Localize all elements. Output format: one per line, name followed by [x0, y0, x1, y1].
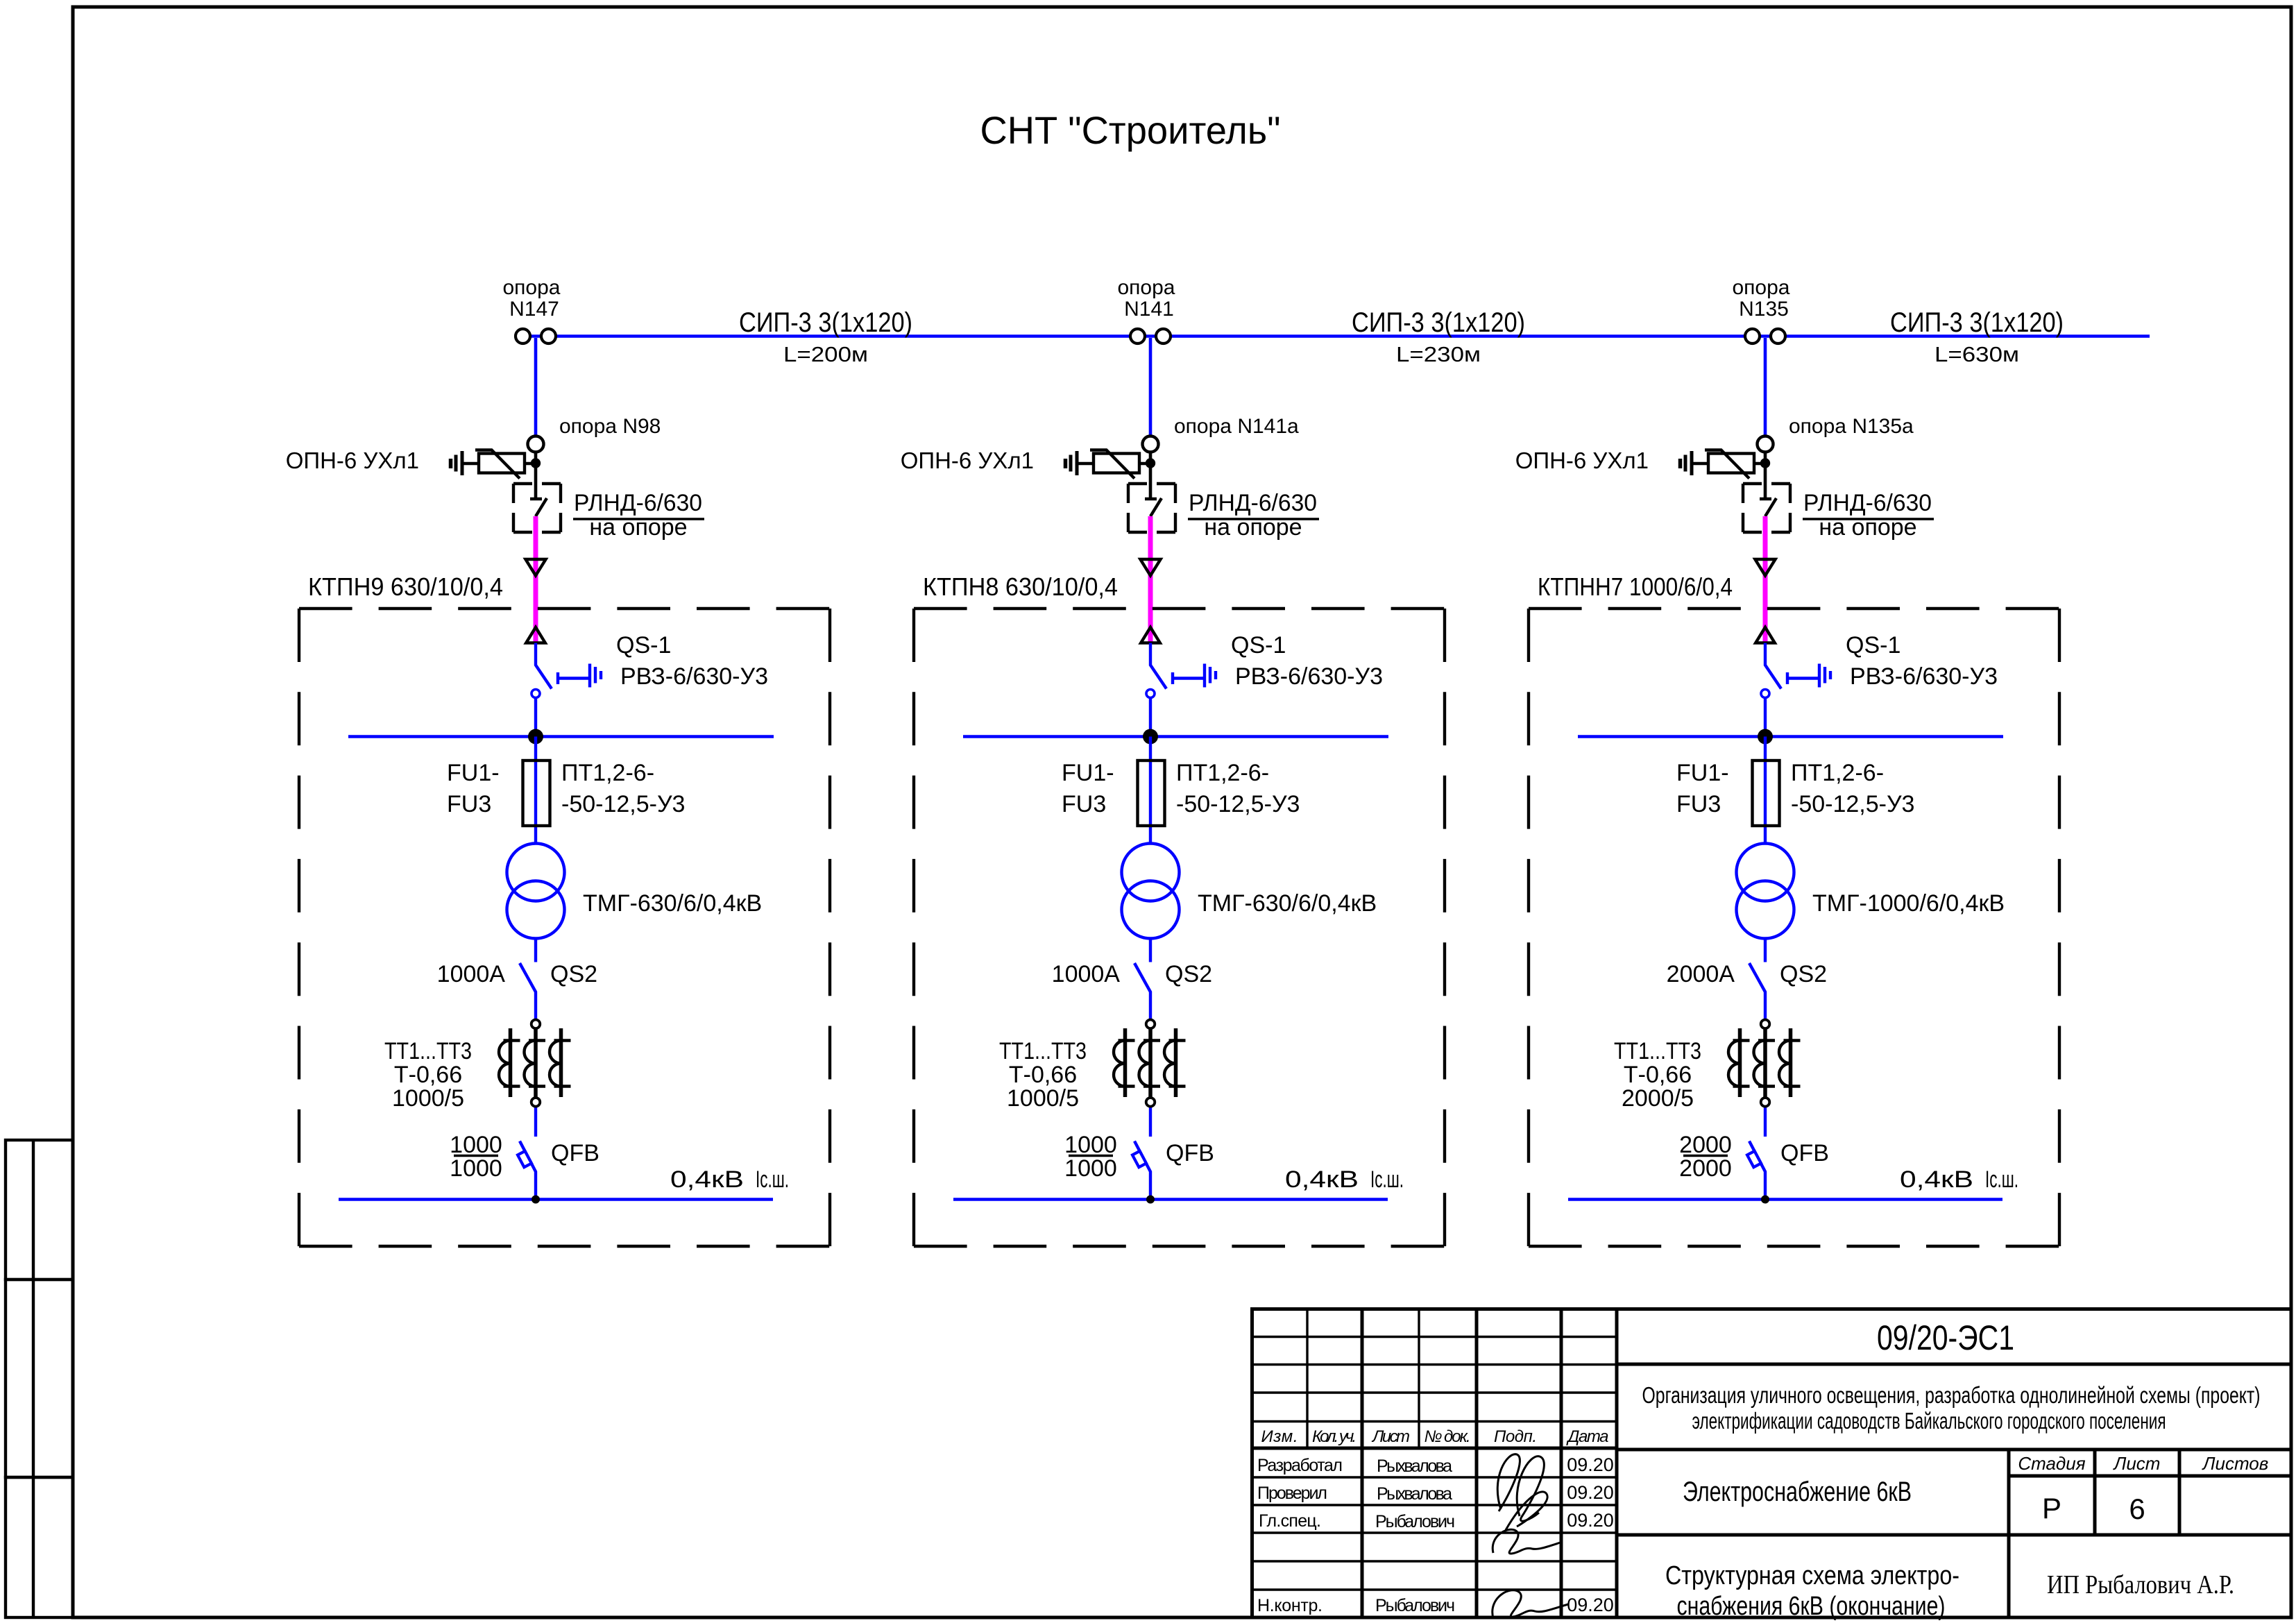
- svg-text:РВЗ-6/630-У3: РВЗ-6/630-У3: [620, 663, 768, 690]
- svg-text:Р: Р: [2042, 1492, 2061, 1524]
- svg-text:Стадия: Стадия: [2018, 1453, 2085, 1474]
- svg-text:Iс.ш.: Iс.ш.: [1985, 1166, 2018, 1193]
- svg-text:1000/5: 1000/5: [1007, 1085, 1079, 1112]
- svg-text:Рыбалович: Рыбалович: [1375, 1512, 1455, 1531]
- svg-text:на опоре: на опоре: [589, 514, 687, 541]
- svg-text:ТТ1...ТТ3: ТТ1...ТТ3: [999, 1038, 1087, 1064]
- svg-text:снабжения 6кВ (окончание): снабжения 6кВ (окончание): [1677, 1592, 1946, 1621]
- svg-text:2000/5: 2000/5: [1622, 1085, 1694, 1112]
- svg-text:на опоре: на опоре: [1819, 514, 1916, 541]
- svg-text:2000: 2000: [1679, 1155, 1732, 1182]
- svg-text:Листов: Листов: [2202, 1453, 2269, 1474]
- svg-text:опора: опора: [503, 276, 561, 299]
- svg-text:РЛНД-6/630: РЛНД-6/630: [1189, 490, 1317, 516]
- svg-text:L=630м: L=630м: [1934, 342, 2019, 366]
- svg-text:Дата: Дата: [1566, 1427, 1609, 1446]
- svg-text:КТПН9 630/10/0,4: КТПН9 630/10/0,4: [308, 572, 503, 601]
- svg-text:ПТ1,2-6-: ПТ1,2-6-: [1176, 760, 1269, 786]
- svg-text:09.20: 09.20: [1567, 1454, 1614, 1475]
- svg-text:QS2: QS2: [1780, 961, 1827, 987]
- svg-text:ТТ1...ТТ3: ТТ1...ТТ3: [384, 1038, 472, 1064]
- svg-text:Лист: Лист: [2113, 1453, 2161, 1474]
- svg-text:Проверил: Проверил: [1257, 1484, 1327, 1503]
- svg-text:Электроснабжение 6кВ: Электроснабжение 6кВ: [1683, 1477, 1912, 1507]
- svg-text:6: 6: [2129, 1493, 2145, 1525]
- svg-text:Т-0,66: Т-0,66: [1009, 1062, 1077, 1088]
- svg-text:0,4кВ: 0,4кВ: [670, 1166, 744, 1193]
- svg-text:Рыбалович: Рыбалович: [1375, 1596, 1455, 1615]
- svg-text:КТПН8 630/10/0,4: КТПН8 630/10/0,4: [923, 572, 1118, 601]
- svg-text:Iс.ш.: Iс.ш.: [1370, 1166, 1404, 1193]
- svg-text:1000: 1000: [1064, 1155, 1117, 1182]
- svg-text:N135: N135: [1739, 298, 1789, 321]
- svg-text:ОПН-6 УХл1: ОПН-6 УХл1: [1515, 448, 1649, 473]
- svg-text:Лист: Лист: [1371, 1427, 1410, 1446]
- svg-text:СИП-3 3(1х120): СИП-3 3(1х120): [1352, 307, 1525, 338]
- svg-text:1000/5: 1000/5: [392, 1085, 464, 1112]
- svg-text:опора: опора: [1118, 276, 1175, 299]
- svg-text:ОПН-6 УХл1: ОПН-6 УХл1: [901, 448, 1034, 473]
- svg-text:QS2: QS2: [1165, 961, 1212, 987]
- svg-text:ИП Рыбалович А.Р.: ИП Рыбалович А.Р.: [2047, 1570, 2234, 1599]
- svg-text:QS-1: QS-1: [1846, 632, 1900, 658]
- svg-text:FU1-: FU1-: [1676, 760, 1729, 786]
- svg-text:Рыхвалова: Рыхвалова: [1377, 1484, 1452, 1504]
- svg-text:-50-12,5-У3: -50-12,5-У3: [561, 791, 685, 817]
- svg-text:ТМГ-630/6/0,4кВ: ТМГ-630/6/0,4кВ: [583, 890, 762, 917]
- svg-text:РВЗ-6/630-У3: РВЗ-6/630-У3: [1850, 663, 1998, 690]
- svg-text:FU1-: FU1-: [447, 760, 500, 786]
- svg-text:Рыхвалова: Рыхвалова: [1377, 1456, 1452, 1476]
- svg-text:№ док.: № док.: [1425, 1427, 1471, 1446]
- svg-text:ТМГ-1000/6/0,4кВ: ТМГ-1000/6/0,4кВ: [1812, 890, 2005, 917]
- svg-text:Т-0,66: Т-0,66: [1624, 1062, 1692, 1088]
- svg-text:СИП-3 3(1х120): СИП-3 3(1х120): [1890, 307, 2064, 338]
- svg-text:электрификации садоводств Байк: электрификации садоводств Байкальского г…: [1692, 1408, 2166, 1434]
- svg-text:РЛНД-6/630: РЛНД-6/630: [574, 490, 702, 516]
- svg-text:FU3: FU3: [447, 791, 491, 817]
- svg-text:QFB: QFB: [1166, 1140, 1214, 1166]
- svg-text:09.20: 09.20: [1567, 1482, 1614, 1503]
- svg-text:FU3: FU3: [1062, 791, 1106, 817]
- svg-text:1000А: 1000А: [437, 961, 506, 987]
- svg-text:N141: N141: [1124, 298, 1174, 321]
- svg-text:Разработал: Разработал: [1257, 1456, 1343, 1475]
- svg-text:ТМГ-630/6/0,4кВ: ТМГ-630/6/0,4кВ: [1198, 890, 1377, 917]
- svg-text:-50-12,5-У3: -50-12,5-У3: [1176, 791, 1300, 817]
- svg-text:1000А: 1000А: [1052, 961, 1121, 987]
- svg-text:опора N141а: опора N141а: [1174, 415, 1299, 438]
- svg-text:РВЗ-6/630-У3: РВЗ-6/630-У3: [1235, 663, 1383, 690]
- svg-text:Структурная схема электро-: Структурная схема электро-: [1665, 1561, 1959, 1590]
- svg-text:СНТ "Строитель": СНТ "Строитель": [980, 108, 1281, 152]
- svg-text:FU1-: FU1-: [1062, 760, 1114, 786]
- svg-text:Гл.спец.: Гл.спец.: [1259, 1511, 1321, 1531]
- svg-text:1000: 1000: [450, 1132, 502, 1158]
- svg-text:2000: 2000: [1679, 1132, 1732, 1158]
- svg-text:QFB: QFB: [551, 1140, 599, 1166]
- svg-text:1000: 1000: [450, 1155, 502, 1182]
- svg-text:СИП-3 3(1х120): СИП-3 3(1х120): [739, 307, 912, 338]
- svg-text:Н.контр.: Н.контр.: [1257, 1596, 1323, 1615]
- svg-text:опора N135а: опора N135а: [1789, 415, 1914, 438]
- svg-text:QS-1: QS-1: [616, 632, 671, 658]
- svg-text:РЛНД-6/630: РЛНД-6/630: [1803, 490, 1932, 516]
- svg-text:09/20-ЭС1: 09/20-ЭС1: [1877, 1318, 2014, 1357]
- svg-text:0,4кВ: 0,4кВ: [1285, 1166, 1359, 1193]
- svg-text:1000: 1000: [1064, 1132, 1117, 1158]
- svg-text:ПТ1,2-6-: ПТ1,2-6-: [561, 760, 654, 786]
- svg-text:КТПНН7 1000/6/0,4: КТПНН7 1000/6/0,4: [1538, 572, 1733, 601]
- svg-text:Кол. уч.: Кол. уч.: [1312, 1427, 1357, 1446]
- svg-text:FU3: FU3: [1676, 791, 1721, 817]
- svg-text:Подп.: Подп.: [1494, 1427, 1537, 1446]
- svg-text:опора: опора: [1733, 276, 1790, 299]
- svg-text:N147: N147: [509, 298, 559, 321]
- svg-text:ТТ1...ТТ3: ТТ1...ТТ3: [1614, 1038, 1701, 1064]
- svg-text:2000А: 2000А: [1667, 961, 1735, 987]
- svg-text:опора N98: опора N98: [559, 415, 661, 438]
- svg-text:L=230м: L=230м: [1396, 342, 1481, 366]
- svg-text:Изм.: Изм.: [1261, 1427, 1298, 1446]
- svg-text:Iс.ш.: Iс.ш.: [756, 1166, 789, 1193]
- svg-text:09.20: 09.20: [1567, 1510, 1614, 1531]
- svg-text:ОПН-6 УХл1: ОПН-6 УХл1: [286, 448, 419, 473]
- svg-text:ПТ1,2-6-: ПТ1,2-6-: [1791, 760, 1884, 786]
- svg-text:QS-1: QS-1: [1231, 632, 1286, 658]
- svg-text:QS2: QS2: [550, 961, 597, 987]
- svg-text:L=200м: L=200м: [783, 342, 868, 366]
- svg-text:на опоре: на опоре: [1204, 514, 1302, 541]
- svg-text:-50-12,5-У3: -50-12,5-У3: [1791, 791, 1914, 817]
- svg-text:0,4кВ: 0,4кВ: [1900, 1166, 1973, 1193]
- svg-text:09.20: 09.20: [1567, 1595, 1614, 1615]
- svg-text:Организация уличного освещения: Организация уличного освещения, разработ…: [1642, 1382, 2261, 1408]
- svg-text:QFB: QFB: [1780, 1140, 1829, 1166]
- svg-text:Т-0,66: Т-0,66: [394, 1062, 462, 1088]
